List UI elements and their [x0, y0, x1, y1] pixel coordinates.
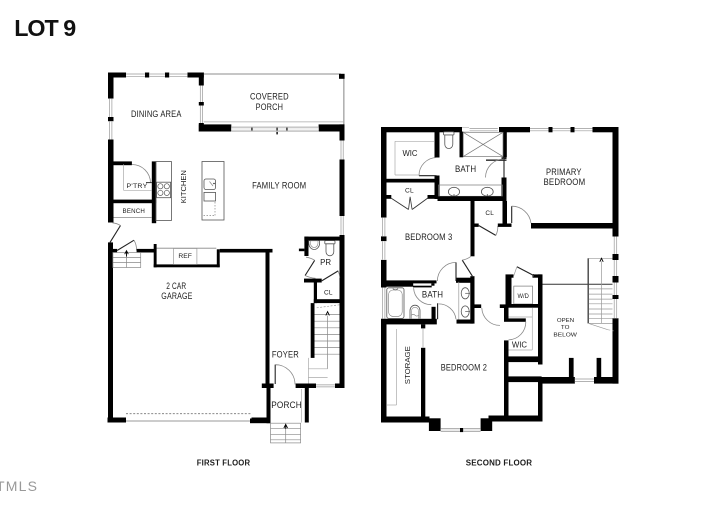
svg-text:COVERED: COVERED: [250, 91, 289, 101]
svg-text:REF: REF: [178, 253, 192, 260]
svg-text:SECOND FLOOR: SECOND FLOOR: [466, 458, 533, 468]
svg-text:PRIMARY: PRIMARY: [546, 167, 582, 177]
svg-text:FIRST FLOOR: FIRST FLOOR: [197, 458, 251, 468]
svg-text:BEDROOM: BEDROOM: [544, 177, 586, 187]
svg-text:BEDROOM 3: BEDROOM 3: [405, 232, 453, 242]
svg-text:CL: CL: [485, 210, 494, 217]
svg-text:STORAGE: STORAGE: [403, 346, 412, 384]
svg-text:P'TRY: P'TRY: [127, 183, 148, 190]
svg-text:BELOW: BELOW: [553, 332, 577, 338]
svg-text:CL: CL: [324, 289, 333, 296]
svg-text:BATH: BATH: [422, 289, 443, 299]
svg-text:DINING AREA: DINING AREA: [131, 109, 182, 119]
svg-text:2 CAR: 2 CAR: [166, 281, 186, 291]
svg-text:PORCH: PORCH: [271, 400, 302, 410]
svg-text:BATH: BATH: [455, 164, 476, 174]
svg-text:WIC: WIC: [512, 341, 527, 350]
svg-text:GARAGE: GARAGE: [161, 291, 192, 301]
svg-text:OPEN: OPEN: [557, 318, 574, 324]
svg-text:PR: PR: [320, 257, 331, 267]
svg-text:PORCH: PORCH: [256, 102, 284, 112]
svg-text:BEDROOM 2: BEDROOM 2: [441, 363, 487, 373]
svg-text:FAMILY ROOM: FAMILY ROOM: [252, 180, 306, 190]
svg-text:TO: TO: [561, 325, 570, 331]
svg-text:KITCHEN: KITCHEN: [179, 170, 188, 203]
svg-text:WIC: WIC: [403, 149, 418, 158]
svg-text:FOYER: FOYER: [272, 350, 299, 360]
svg-text:CL: CL: [405, 187, 414, 194]
svg-text:BENCH: BENCH: [123, 208, 146, 215]
svg-text:W/D: W/D: [518, 293, 530, 300]
